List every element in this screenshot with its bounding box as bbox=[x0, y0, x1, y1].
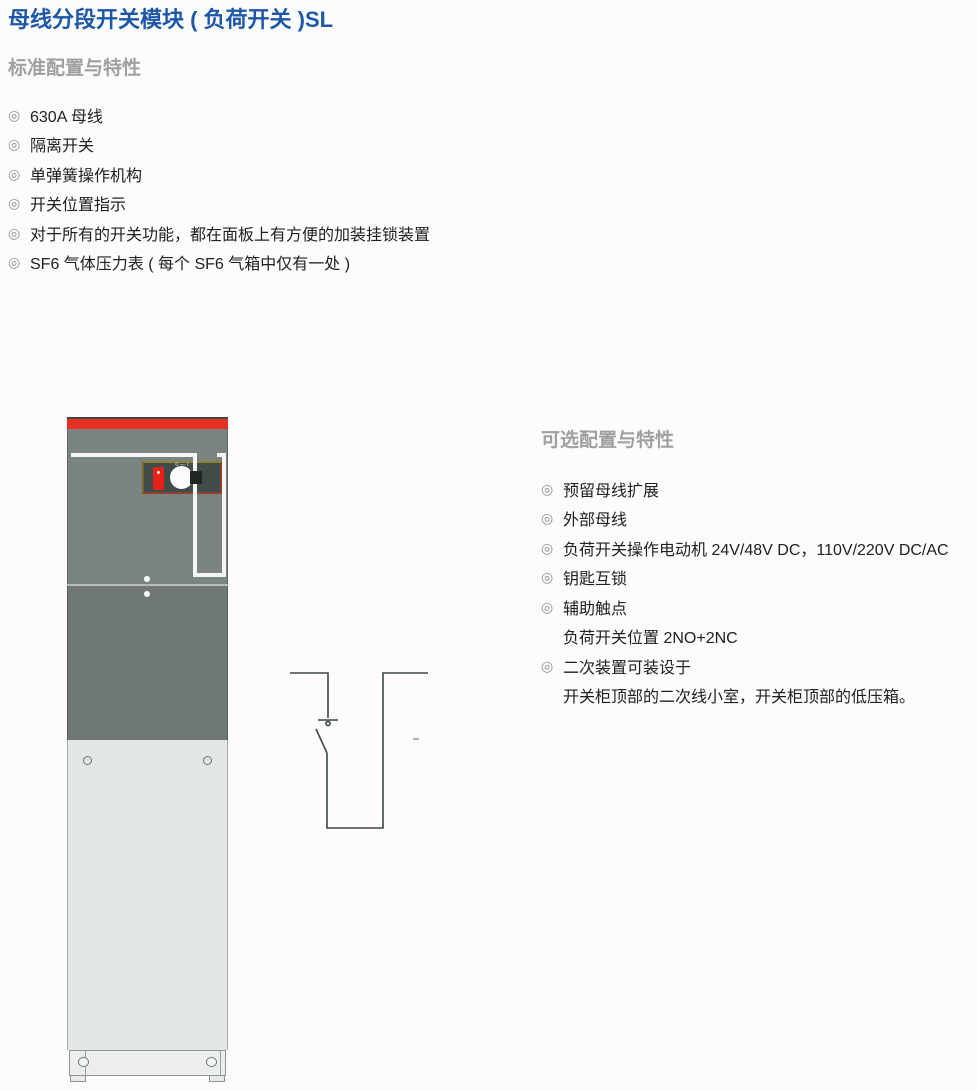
feature-text: 单弹簧操作机构 bbox=[30, 162, 142, 186]
feature-text: 钥匙互锁 bbox=[563, 565, 627, 589]
panel-slot bbox=[190, 471, 202, 484]
bullet-icon: ◎ bbox=[8, 196, 30, 210]
list-item-continuation: 开关柜顶部的二次线小室，开关柜顶部的低压箱。 bbox=[541, 681, 949, 711]
feature-text: 辅助触点 bbox=[563, 595, 627, 619]
optional-section-heading: 可选配置与特性 bbox=[541, 429, 674, 453]
cabinet-base bbox=[69, 1050, 226, 1076]
list-item: ◎单弹簧操作机构 bbox=[8, 159, 430, 189]
panel-dot bbox=[144, 576, 150, 582]
list-item: ◎外部母线 bbox=[541, 504, 949, 534]
panel-hole-left bbox=[83, 756, 92, 765]
switch-control-panel: 0—I bbox=[142, 461, 222, 494]
busbar-right-loop bbox=[327, 673, 428, 828]
feature-text: 预留母线扩展 bbox=[563, 477, 659, 501]
bullet-icon: ◎ bbox=[541, 600, 563, 614]
bullet-icon: ◎ bbox=[541, 511, 563, 525]
feature-text: 630A 母线 bbox=[30, 103, 103, 127]
position-indicator bbox=[153, 467, 164, 490]
panel-hole-right bbox=[203, 756, 212, 765]
panel-dot bbox=[144, 591, 150, 597]
feature-text: 隔离开关 bbox=[30, 132, 94, 156]
list-item: ◎对于所有的开关功能，都在面板上有方便的加装挂锁装置 bbox=[8, 218, 430, 248]
list-item: ◎辅助触点 bbox=[541, 592, 949, 622]
standard-feature-list: ◎630A 母线 ◎隔离开关 ◎单弹簧操作机构 ◎开关位置指示 ◎对于所有的开关… bbox=[8, 100, 430, 277]
switch-blade bbox=[316, 729, 327, 753]
list-item: ◎预留母线扩展 bbox=[541, 474, 949, 504]
bullet-icon: ◎ bbox=[541, 541, 563, 555]
bullet-icon: ◎ bbox=[8, 108, 30, 122]
optional-feature-list: ◎预留母线扩展 ◎外部母线 ◎负荷开关操作电动机 24V/48V DC，110V… bbox=[541, 474, 949, 710]
feature-text: 二次装置可装设于 bbox=[563, 654, 691, 678]
standard-section-heading: 标准配置与特性 bbox=[8, 57, 141, 81]
feature-text: 对于所有的开关功能，都在面板上有方便的加装挂锁装置 bbox=[30, 221, 430, 245]
bullet-icon: ◎ bbox=[541, 659, 563, 673]
cabinet-lower-panel bbox=[67, 740, 228, 1050]
list-item: ◎钥匙互锁 bbox=[541, 563, 949, 593]
feature-text: 开关位置指示 bbox=[30, 191, 126, 215]
feature-text: 负荷开关位置 2NO+2NC bbox=[563, 624, 738, 648]
circuit-lines bbox=[290, 673, 428, 828]
mimic-line-horizontal bbox=[71, 453, 197, 457]
base-hole-left bbox=[78, 1057, 89, 1067]
list-item-continuation: 负荷开关位置 2NO+2NC bbox=[541, 622, 949, 652]
list-item: ◎SF6 气体压力表 ( 每个 SF6 气箱中仅有一处 ) bbox=[8, 248, 430, 278]
base-hole-right bbox=[206, 1057, 217, 1067]
busbar-left-lead bbox=[290, 673, 328, 718]
cabinet-foot-right bbox=[209, 1076, 225, 1082]
feature-text: 负荷开关操作电动机 24V/48V DC，110V/220V DC/AC bbox=[563, 536, 949, 560]
bullet-icon: ◎ bbox=[8, 255, 30, 269]
cabinet-middle-panel bbox=[67, 586, 228, 740]
bullet-icon: ◎ bbox=[8, 167, 30, 181]
feature-text: 开关柜顶部的二次线小室，开关柜顶部的低压箱。 bbox=[563, 683, 915, 707]
cabinet-foot-left bbox=[70, 1076, 86, 1082]
list-item: ◎隔离开关 bbox=[8, 130, 430, 160]
switchgear-cabinet-image: 0—I bbox=[67, 417, 228, 1083]
feature-text: SF6 气体压力表 ( 每个 SF6 气箱中仅有一处 ) bbox=[30, 250, 350, 274]
bullet-icon: ◎ bbox=[541, 570, 563, 584]
page-title: 母线分段开关模块 ( 负荷开关 )SL bbox=[8, 6, 333, 34]
list-item: ◎630A 母线 bbox=[8, 100, 430, 130]
list-item: ◎二次装置可装设于 bbox=[541, 651, 949, 681]
cabinet-red-strip bbox=[67, 419, 228, 429]
list-item: ◎开关位置指示 bbox=[8, 189, 430, 219]
catalog-page: { "page": { "title": "母线分段开关模块 ( 负荷开关 )S… bbox=[0, 0, 977, 1091]
list-item: ◎负荷开关操作电动机 24V/48V DC，110V/220V DC/AC bbox=[541, 533, 949, 563]
bullet-icon: ◎ bbox=[541, 482, 563, 496]
switch-hinge-point bbox=[326, 721, 330, 725]
base-divider-right bbox=[220, 1050, 221, 1076]
bullet-icon: ◎ bbox=[8, 137, 30, 151]
mimic-line-top-stub bbox=[217, 453, 226, 457]
circuit-diagram bbox=[280, 660, 440, 840]
feature-text: 外部母线 bbox=[563, 506, 627, 530]
mimic-line-vertical-right bbox=[222, 453, 226, 577]
bullet-icon: ◎ bbox=[8, 226, 30, 240]
indicator-dot bbox=[157, 471, 160, 474]
